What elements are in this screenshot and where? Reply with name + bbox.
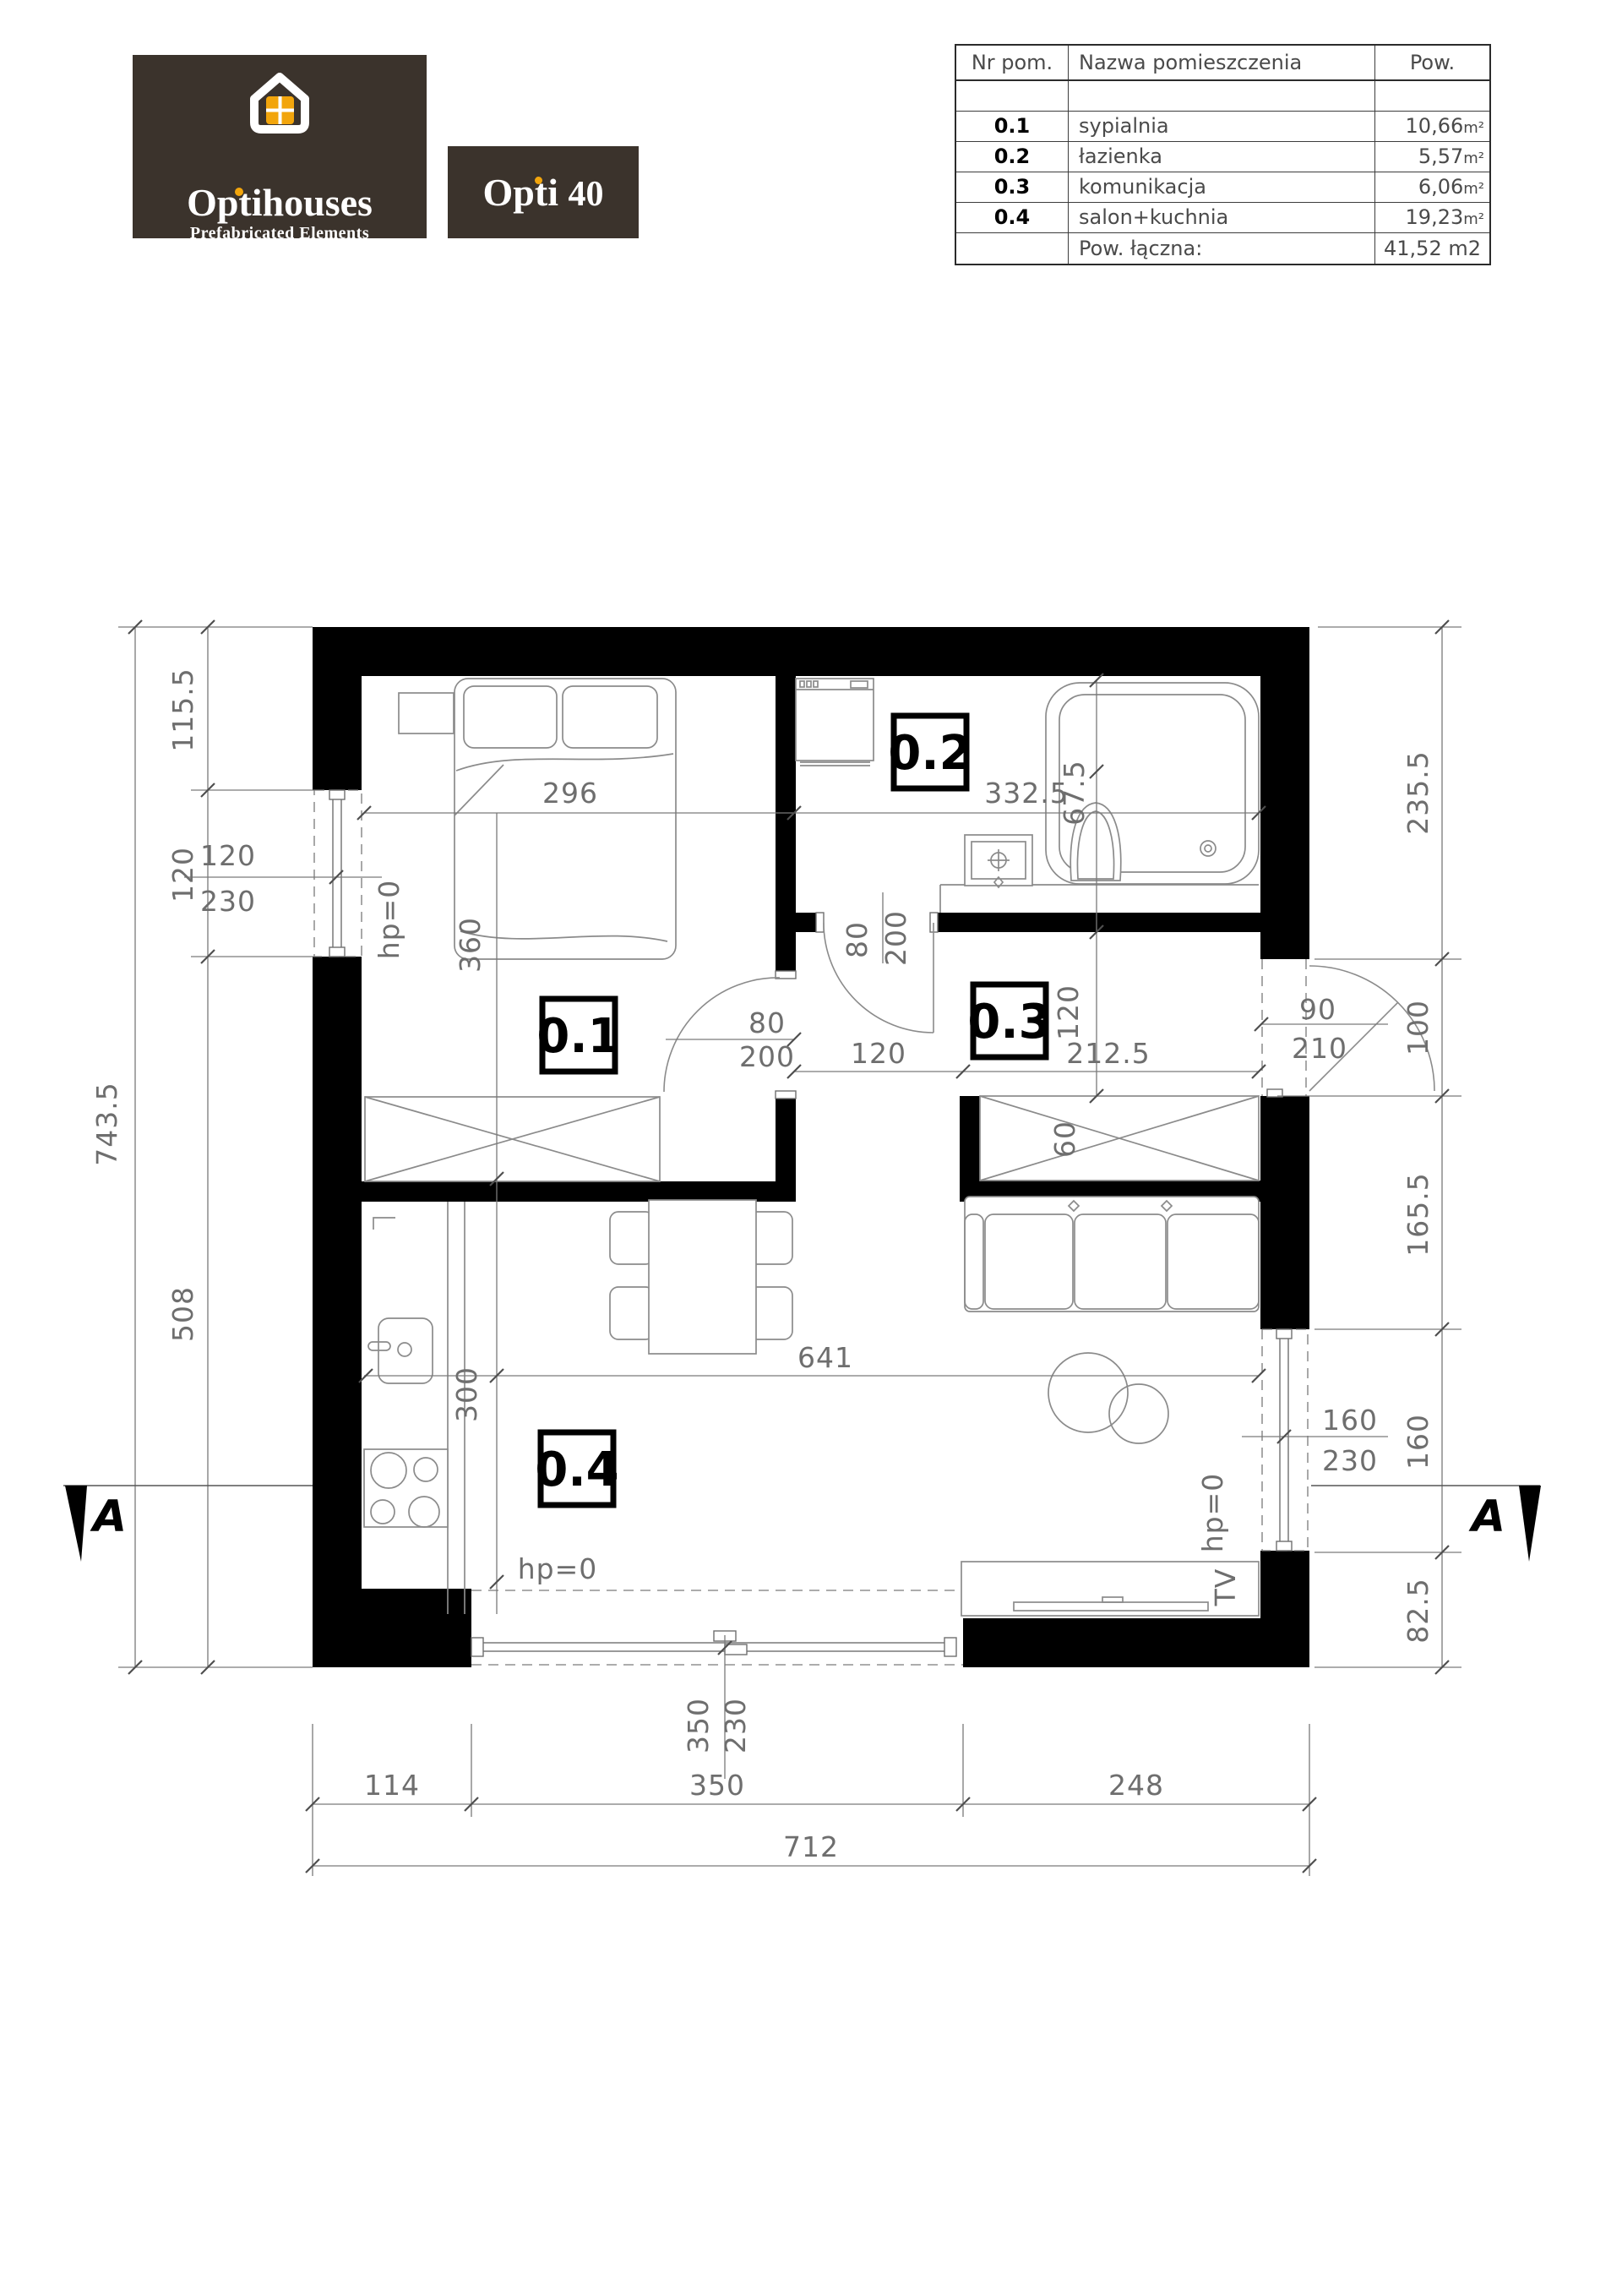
dim-right-top: 235.5 <box>1402 750 1434 834</box>
dim-left-top: 115.5 <box>166 668 199 751</box>
section-markers: A A <box>63 1486 1541 1562</box>
corridor-wardrobe <box>980 1096 1259 1181</box>
bedroom-wardrobe <box>365 1097 660 1181</box>
sofa <box>965 1197 1259 1312</box>
right-window-hp: hp=0 <box>1196 1473 1229 1553</box>
section-arrow-right <box>1519 1486 1541 1562</box>
dim-wardrobe-depth: 60 <box>1048 1121 1081 1158</box>
washing-machine <box>796 679 874 766</box>
dim-left-total: 743.5 <box>90 1082 123 1165</box>
hob <box>364 1449 448 1527</box>
dim-bottom-total: 712 <box>783 1830 839 1863</box>
dim-left-window-w: 120 <box>200 839 256 872</box>
dim-bottom-s1: 114 <box>364 1769 420 1802</box>
dim-corridor-passage: 120 <box>851 1037 906 1070</box>
chair <box>610 1212 654 1264</box>
dim-entry-door-w: 90 <box>1299 993 1336 1026</box>
dim-bathroom-width: 332.5 <box>984 777 1068 810</box>
section-label-left: A <box>90 1492 127 1542</box>
dim-right-window-h: 230 <box>1322 1444 1378 1477</box>
dining-table <box>649 1200 756 1354</box>
bathroom-sink <box>965 835 1032 887</box>
dim-bath-door-h: 200 <box>879 910 912 966</box>
left-window-hp: hp=0 <box>373 880 405 960</box>
dim-right-bottom: 82.5 <box>1402 1578 1434 1643</box>
dim-south-window-w: 350 <box>682 1698 715 1753</box>
dim-bottom-s3: 248 <box>1108 1769 1164 1802</box>
dim-south-window-h: 230 <box>719 1698 752 1753</box>
dim-bath-door-w: 80 <box>841 921 874 958</box>
dim-left-window-h: 230 <box>200 885 256 918</box>
bathroom-counter <box>940 885 1259 913</box>
south-window <box>471 1590 963 1665</box>
dim-living-width: 641 <box>797 1341 853 1374</box>
counter-corner <box>373 1218 395 1230</box>
left-window <box>314 790 362 957</box>
dim-bedroom-door-w: 80 <box>748 1006 786 1039</box>
kitchen-sink <box>368 1318 433 1383</box>
bathroom-door <box>816 913 938 1033</box>
south-window-hp: hp=0 <box>518 1552 598 1585</box>
dim-corridor-width: 212.5 <box>1066 1037 1150 1070</box>
room-label-bedroom: 0.1 <box>536 1009 620 1064</box>
room-label-corridor: 0.3 <box>967 995 1051 1050</box>
dim-entry-door-h: 210 <box>1292 1032 1347 1065</box>
dim-bedroom-door-h: 200 <box>739 1040 795 1073</box>
dim-right-window: 160 <box>1402 1414 1434 1470</box>
coffee-table <box>1048 1353 1168 1443</box>
dim-corridor-height: 120 <box>1052 984 1085 1040</box>
page: Optihouses Prefabricated Elements Opti 4… <box>0 0 1622 2296</box>
right-window <box>1262 1329 1308 1551</box>
dim-left-window: 120 <box>166 847 199 903</box>
bed <box>454 679 676 959</box>
dim-bedroom-width: 296 <box>542 777 598 810</box>
room-label-living: 0.4 <box>535 1442 618 1497</box>
dim-bottom-s2: 350 <box>689 1769 745 1802</box>
room-label-bathroom: 0.2 <box>888 726 972 781</box>
dining-set <box>610 1200 792 1354</box>
dim-living-depth: 300 <box>450 1366 483 1422</box>
section-label-right: A <box>1468 1492 1505 1542</box>
tv-label: TV <box>1209 1568 1242 1607</box>
dim-right-window-w: 160 <box>1322 1404 1378 1437</box>
dim-left-bottom: 508 <box>166 1286 199 1342</box>
section-arrow-left <box>65 1486 87 1562</box>
dim-right-door: 100 <box>1402 1000 1434 1055</box>
dim-bed-length: 360 <box>454 917 487 973</box>
dim-right-middle: 165.5 <box>1402 1172 1434 1256</box>
floor-plan: 743.5 115.5 120 508 120 230 hp=0 296 360… <box>0 0 1622 2296</box>
nightstand <box>399 693 454 734</box>
dim-toilet-offset: 67.5 <box>1058 760 1091 825</box>
chair <box>610 1287 654 1339</box>
